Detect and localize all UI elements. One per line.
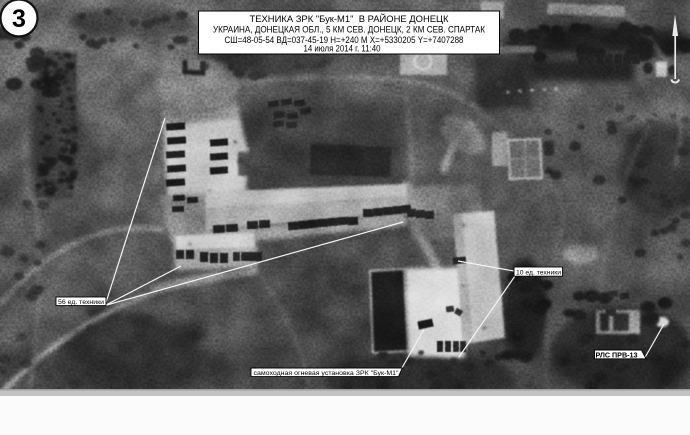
svg-text:УКРАИНА, ДОНЕЦКАЯ ОБЛ., 5 КМ С: УКРАИНА, ДОНЕЦКАЯ ОБЛ., 5 КМ СЕВ. ДОНЕЦК…	[213, 24, 486, 34]
svg-text:ТЕХНИКА ЗРК "Бук-М1" В РАЙОНЕ: ТЕХНИКА ЗРК "Бук-М1" В РАЙОНЕ ДОНЕЦК	[250, 13, 450, 24]
svg-text:самоходная огневая установка З: самоходная огневая установка ЗРК "Бук-М1…	[254, 370, 400, 377]
svg-text:56 ед. техники: 56 ед. техники	[58, 299, 104, 306]
svg-text:РЛС ПРВ-13: РЛС ПРВ-13	[596, 350, 638, 359]
svg-text:3: 3	[12, 5, 26, 33]
svg-text:10 ед. техники: 10 ед. техники	[516, 269, 561, 276]
svg-text:14 июля 2014 г. 11:40: 14 июля 2014 г. 11:40	[304, 44, 381, 54]
